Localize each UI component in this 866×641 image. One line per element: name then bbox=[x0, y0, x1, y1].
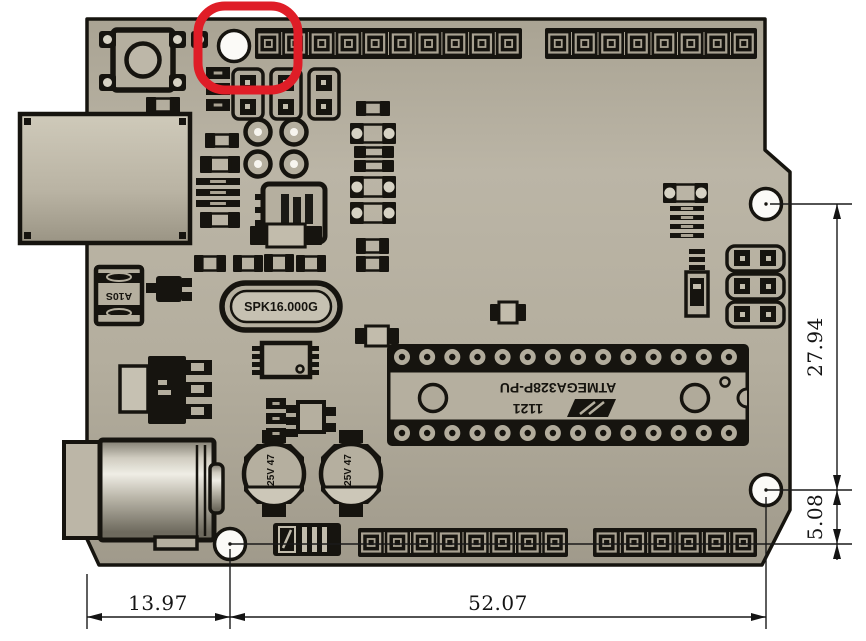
smd-pad bbox=[389, 328, 399, 344]
smd-component bbox=[355, 326, 399, 346]
capacitor-label: 25V 47 bbox=[266, 454, 277, 486]
socket-pin-hole bbox=[474, 430, 480, 436]
diode: A10S bbox=[96, 267, 142, 324]
hole-center-dot bbox=[764, 202, 767, 205]
array-bar-slit bbox=[272, 402, 279, 405]
array-bar-slit bbox=[210, 180, 226, 183]
pin-header-bottom-left bbox=[358, 528, 568, 557]
mcu-label-line1: ATMEGA328P-PU bbox=[500, 380, 616, 396]
led-dot bbox=[384, 182, 395, 193]
array-bar-slit bbox=[214, 104, 223, 107]
chip-dimple bbox=[420, 385, 447, 412]
array-bar-slit bbox=[210, 191, 226, 194]
icsp-pin-center bbox=[766, 284, 771, 289]
pcb-drawing: A10S SPK16.000G bbox=[0, 0, 866, 641]
smd-component bbox=[250, 224, 322, 247]
socket-pin-hole bbox=[550, 354, 556, 360]
socket-pin-hole bbox=[525, 354, 531, 360]
array-bar-slit bbox=[272, 417, 279, 420]
pin-header-bottom-right bbox=[593, 528, 757, 557]
atmel-logo bbox=[567, 399, 616, 417]
dim-arrow bbox=[833, 544, 841, 559]
icsp-pin-center bbox=[766, 256, 771, 261]
soic8-chip bbox=[252, 343, 319, 377]
smd-capacitor-vertical bbox=[686, 249, 708, 316]
ferrite-inductor bbox=[273, 523, 341, 556]
via-hole bbox=[254, 160, 262, 168]
via-hole bbox=[290, 160, 298, 168]
socket-pin-hole bbox=[525, 430, 531, 436]
led-dot bbox=[384, 208, 395, 219]
dimension-right-upper: 27.94 bbox=[803, 317, 827, 377]
dimension-bottom-left: 13.97 bbox=[128, 591, 188, 615]
socket-pin-hole bbox=[726, 430, 732, 436]
socket-pin-hole bbox=[701, 354, 707, 360]
smd-pad bbox=[250, 226, 266, 245]
mcu-label-line2: 1121 bbox=[513, 401, 544, 417]
smd-pad bbox=[355, 328, 365, 344]
dim-arrow bbox=[833, 490, 841, 505]
array-bar-slit bbox=[272, 432, 279, 435]
dim-arrow bbox=[215, 613, 230, 621]
socket-pin-hole bbox=[650, 430, 656, 436]
led-dot bbox=[696, 188, 707, 199]
smd-component bbox=[490, 302, 526, 323]
socket-pin-hole bbox=[575, 430, 581, 436]
icsp-pin-center bbox=[740, 312, 745, 317]
socket-pin-hole bbox=[449, 430, 455, 436]
socket-pin-hole bbox=[726, 354, 732, 360]
socket-pin-hole bbox=[474, 354, 480, 360]
chip-notch bbox=[738, 389, 747, 407]
via-hole bbox=[290, 128, 298, 136]
led-dot bbox=[664, 188, 675, 199]
dim-arrow bbox=[230, 613, 245, 621]
socket-pin-hole bbox=[701, 430, 707, 436]
dim-arrow bbox=[833, 529, 841, 544]
icsp-pin-center bbox=[740, 284, 745, 289]
smd-body bbox=[499, 302, 517, 323]
socket-pin-hole bbox=[625, 430, 631, 436]
diode-label: A10S bbox=[106, 290, 132, 302]
pin-header-top-right bbox=[545, 28, 757, 59]
pad-center bbox=[321, 104, 326, 109]
socket-pin-hole bbox=[575, 354, 581, 360]
icsp-pin-center bbox=[766, 312, 771, 317]
usb-connector bbox=[20, 114, 190, 243]
dim-arrow bbox=[751, 613, 766, 621]
chip-dimple bbox=[682, 385, 709, 412]
dim-arrow bbox=[833, 475, 841, 490]
via-hole bbox=[254, 128, 262, 136]
socket-pin-hole bbox=[449, 354, 455, 360]
contact-pad-dot bbox=[103, 78, 112, 87]
socket-pin-hole bbox=[675, 354, 681, 360]
smd-pad bbox=[490, 304, 498, 321]
led-dot bbox=[351, 208, 362, 219]
smd-pad bbox=[306, 226, 322, 245]
led-dot bbox=[351, 182, 362, 193]
socket-pin-hole bbox=[424, 430, 430, 436]
array-bar-slit bbox=[681, 234, 693, 237]
pad-center bbox=[283, 104, 288, 109]
socket-pin-hole bbox=[499, 430, 505, 436]
socket-pin-hole bbox=[550, 430, 556, 436]
socket-pin-hole bbox=[675, 430, 681, 436]
reset-button bbox=[113, 30, 173, 90]
socket-pin-hole bbox=[650, 354, 656, 360]
smd-body bbox=[267, 224, 305, 247]
dc-barrel-jack bbox=[64, 440, 223, 549]
dim-arrow bbox=[833, 204, 841, 219]
contact-pad-dot bbox=[173, 78, 182, 87]
smd-pad bbox=[518, 304, 526, 321]
crystal-oscillator: SPK16.000G bbox=[222, 283, 340, 330]
dimension-bottom-right: 52.07 bbox=[468, 591, 528, 615]
socket-pin-hole bbox=[600, 354, 606, 360]
crystal-label: SPK16.000G bbox=[244, 300, 318, 314]
pad-center bbox=[321, 80, 326, 85]
resistor-array bbox=[196, 178, 240, 207]
capacitor-label: 25V 47 bbox=[343, 454, 354, 486]
array-bar-slit bbox=[214, 72, 223, 75]
led-dot bbox=[384, 128, 395, 139]
pad-center bbox=[245, 80, 250, 85]
array-bar-slit bbox=[681, 207, 693, 210]
socket-pin-hole bbox=[399, 354, 405, 360]
socket-pin-hole bbox=[600, 430, 606, 436]
resistor-array bbox=[266, 398, 286, 439]
mounting-hole-highlighted[interactable] bbox=[219, 31, 250, 62]
smd-body bbox=[366, 326, 389, 346]
socket-pin-hole bbox=[625, 354, 631, 360]
contact-pad-dot bbox=[103, 35, 112, 44]
socket-pin-hole bbox=[499, 354, 505, 360]
dim-arrow bbox=[87, 613, 102, 621]
led-dot bbox=[351, 128, 362, 139]
array-bar-slit bbox=[681, 225, 693, 228]
mcu-dip-socket: ATMEGA328P-PU 1121 bbox=[387, 344, 749, 446]
pcb-render-canvas: A10S SPK16.000G bbox=[0, 0, 866, 641]
pad-center bbox=[245, 104, 250, 109]
array-bar-slit bbox=[681, 216, 693, 219]
icsp-pin-center bbox=[740, 256, 745, 261]
dimension-right-lower: 5.08 bbox=[803, 494, 827, 541]
contact-pad-dot bbox=[173, 35, 182, 44]
array-bar-slit bbox=[210, 202, 226, 205]
socket-pin-hole bbox=[424, 354, 430, 360]
socket-pin-hole bbox=[399, 430, 405, 436]
